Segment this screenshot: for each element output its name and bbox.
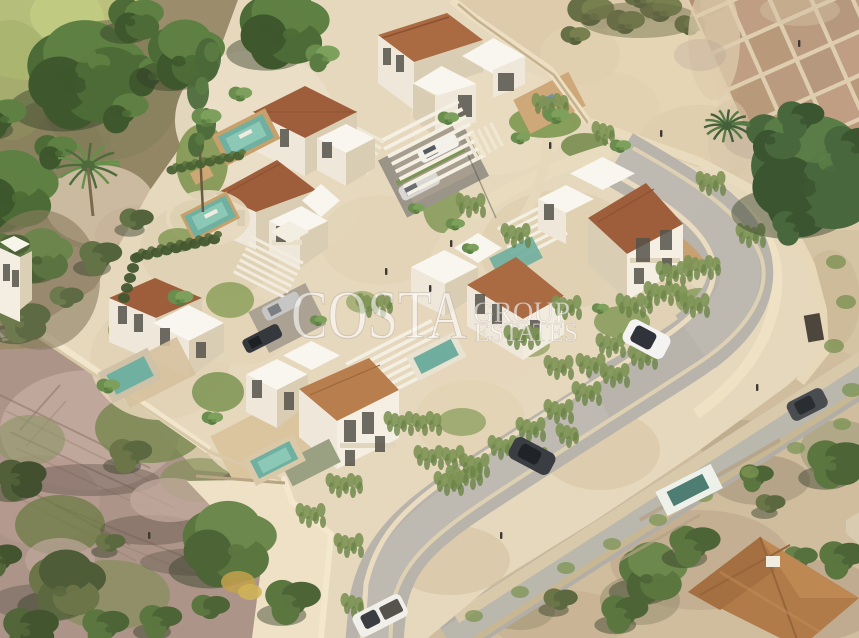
svg-text:ESTATES: ESTATES [474,318,578,347]
svg-text:COSTA: COSTA [291,277,467,353]
